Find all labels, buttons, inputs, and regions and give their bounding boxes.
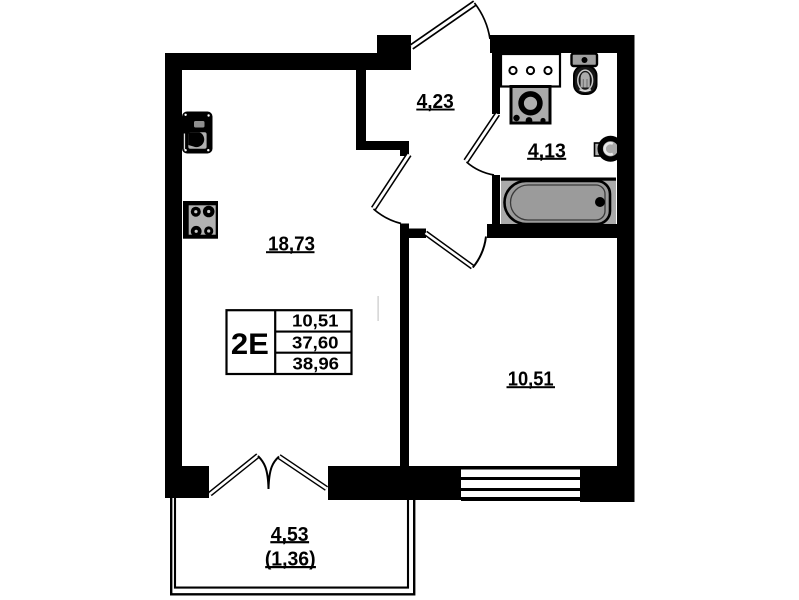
svg-text:37,60: 37,60 — [292, 332, 339, 352]
svg-text:10,51: 10,51 — [292, 310, 339, 330]
svg-text:2E: 2E — [231, 328, 269, 361]
svg-text:38,96: 38,96 — [293, 353, 340, 373]
